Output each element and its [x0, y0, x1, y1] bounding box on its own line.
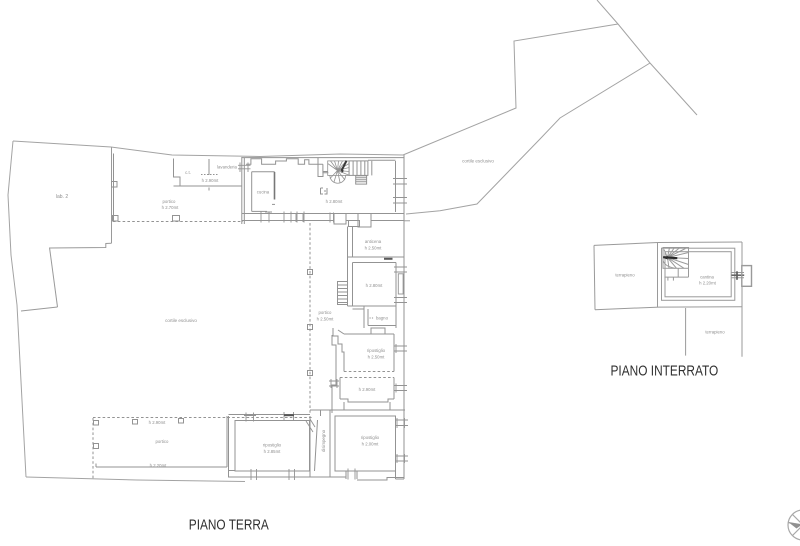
svg-text:portico: portico — [319, 310, 333, 315]
svg-text:h 2.70mt: h 2.70mt — [162, 205, 180, 210]
svg-text:disimpegno: disimpegno — [321, 429, 326, 452]
svg-text:h 2.80mt: h 2.80mt — [366, 283, 384, 288]
svg-text:anticena: anticena — [365, 239, 382, 244]
svg-text:h 2.50mt: h 2.50mt — [368, 355, 386, 360]
svg-text:portico: portico — [156, 439, 170, 444]
svg-text:cucina: cucina — [257, 190, 270, 195]
svg-text:terrapieno: terrapieno — [705, 330, 725, 335]
svg-text:h 2.90mt: h 2.90mt — [202, 178, 220, 183]
svg-text:cortile esclusivo: cortile esclusivo — [462, 159, 494, 164]
svg-text:h 2.90mt: h 2.90mt — [359, 387, 377, 392]
svg-text:ripostiglio: ripostiglio — [367, 348, 386, 353]
svg-text:h 2.80mt: h 2.80mt — [326, 199, 344, 204]
svg-text:PIANO INTERRATO: PIANO INTERRATO — [611, 364, 719, 380]
svg-text:PIANO TERRA: PIANO TERRA — [189, 518, 269, 534]
svg-text:h 2.50mt: h 2.50mt — [317, 317, 335, 322]
svg-text:ripostiglio: ripostiglio — [361, 435, 380, 440]
svg-text:h 2.90mt: h 2.90mt — [149, 420, 167, 425]
svg-text:cantina: cantina — [700, 275, 714, 280]
svg-text:lab. 2: lab. 2 — [56, 194, 68, 200]
svg-text:h 2.20mt: h 2.20mt — [150, 463, 168, 468]
svg-text:h 2.85mt: h 2.85mt — [264, 449, 282, 454]
svg-text:bagno: bagno — [376, 316, 389, 321]
svg-text:c.t.: c.t. — [185, 170, 191, 175]
svg-text:h 2.20mt: h 2.20mt — [699, 281, 717, 286]
svg-text:portico: portico — [163, 199, 177, 204]
svg-text:h 2.00mt: h 2.00mt — [362, 442, 380, 447]
svg-text:terrapieno: terrapieno — [615, 273, 635, 278]
svg-text:h 2.50mt: h 2.50mt — [365, 246, 383, 251]
svg-text:cortile esclusivo: cortile esclusivo — [165, 318, 197, 323]
svg-text:lavanderia: lavanderia — [217, 165, 237, 170]
svg-text:ripostiglio: ripostiglio — [263, 443, 282, 448]
